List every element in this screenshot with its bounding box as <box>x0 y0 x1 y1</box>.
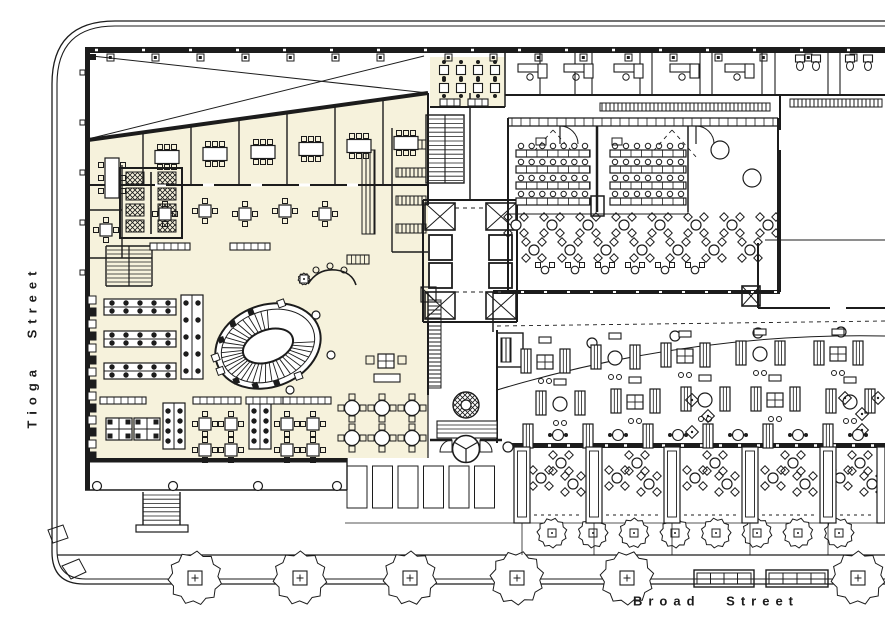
floor-plan-drawing <box>0 0 885 629</box>
broad-street-label: Broad Street <box>633 594 799 609</box>
tioga-street-label: Tioga Street <box>25 266 40 429</box>
floor-plan: Tioga Street Broad Street <box>0 0 885 629</box>
